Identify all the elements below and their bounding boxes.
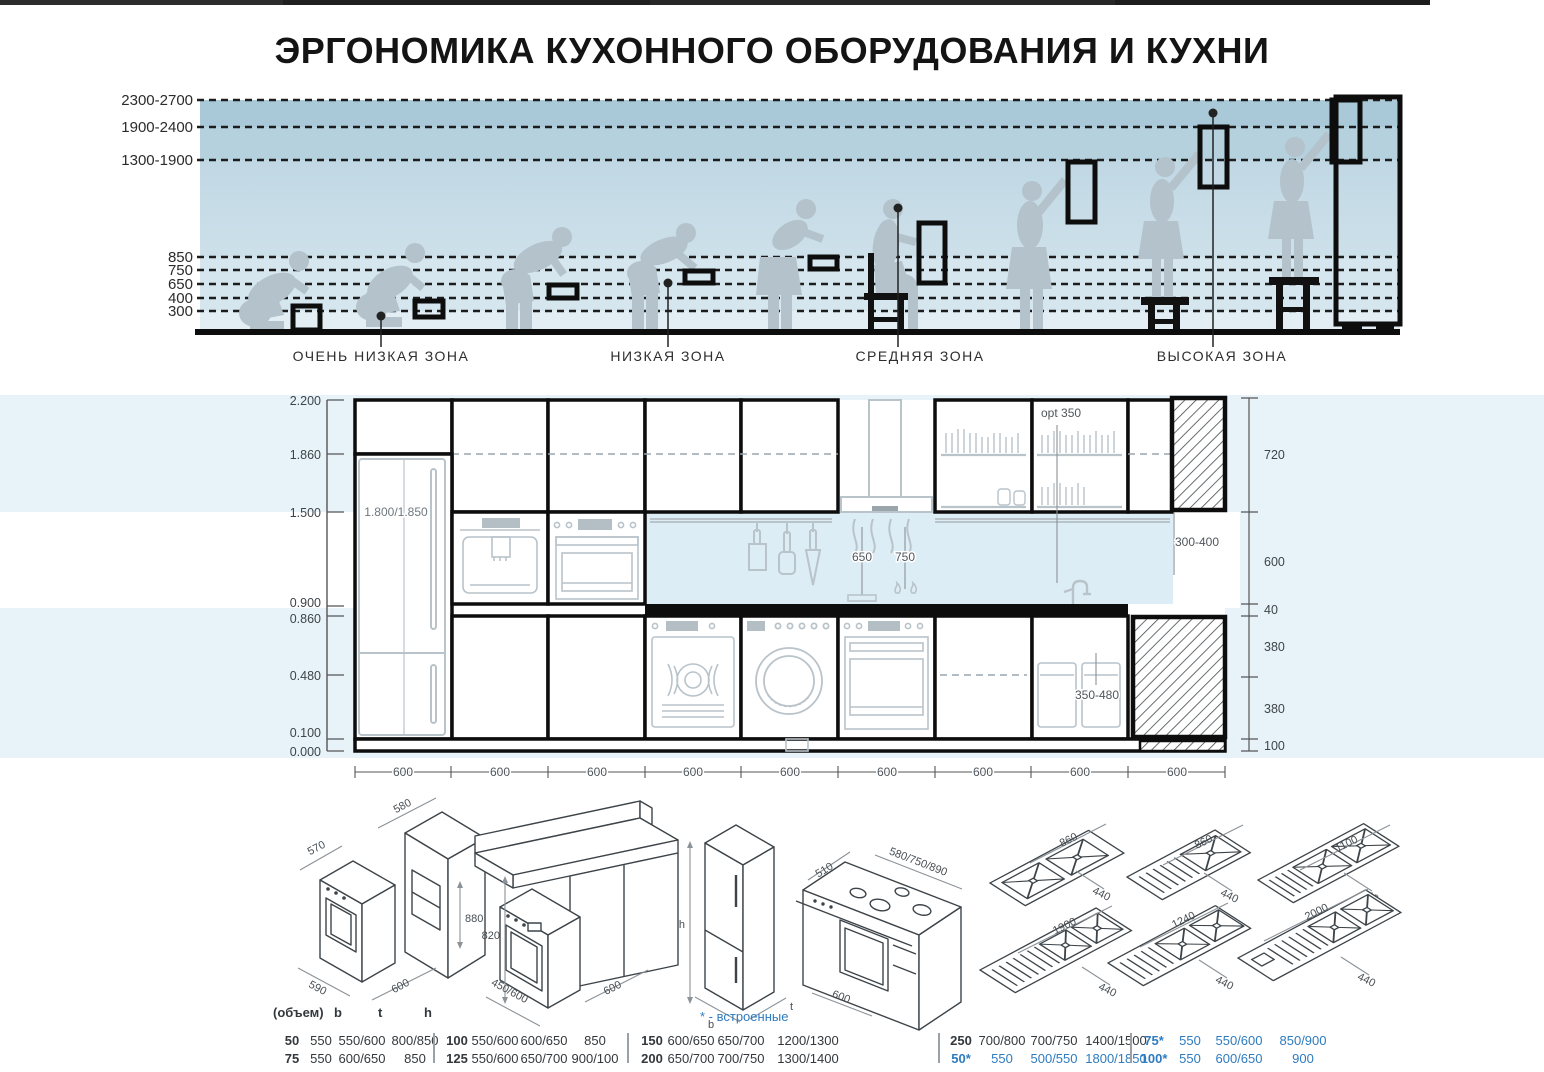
hood-dim-650: 650 <box>852 550 872 564</box>
cabinet <box>452 616 548 739</box>
cell: 600/650 <box>519 1033 569 1048</box>
sink-double-drainboard <box>1258 824 1399 903</box>
page-title: ЭРГОНОМИКА КУХОННОГО ОБОРУДОВАНИЯ И КУХН… <box>0 30 1544 72</box>
dim-590: 590 <box>306 979 328 998</box>
table-separator <box>938 1033 940 1063</box>
cell: 900/100 <box>569 1051 621 1066</box>
zone-label-low: НИЗКАЯ ЗОНА <box>610 348 725 364</box>
right-dim: 380 <box>1264 702 1285 716</box>
module-600: 600 <box>393 765 413 779</box>
dim-niche-880: 880 <box>465 913 483 925</box>
countertop <box>645 604 1128 616</box>
module-600: 600 <box>1167 765 1187 779</box>
height-label: 1300-1900 <box>121 152 193 169</box>
scale-label: 0.100 <box>290 726 321 740</box>
cabinet <box>548 616 645 739</box>
table-separator <box>1130 1033 1132 1063</box>
scale-label: 0.000 <box>290 745 321 759</box>
cell: 1300/1400 <box>766 1051 850 1066</box>
right-dim: 600 <box>1264 555 1285 569</box>
fridge-column: 1.800/1.850 <box>355 454 452 739</box>
cabinet <box>452 400 548 512</box>
bin-depth-label: 350-480 <box>1075 688 1119 702</box>
dim-570: 570 <box>306 839 328 858</box>
cell: 550 <box>306 1051 336 1066</box>
module-600: 600 <box>490 765 510 779</box>
cell: 550 <box>1170 1051 1210 1066</box>
hatched-plinth <box>1140 741 1225 751</box>
iso-sinks: 860 440 860 440 <box>980 824 1401 1000</box>
sink-dim: 440 <box>1218 887 1240 906</box>
table-group-1: 50550550/600800/850 75550600/650850 <box>278 1033 442 1066</box>
dishwasher-cabinet <box>645 616 741 739</box>
dim-h: h <box>679 919 685 931</box>
cell: 550 <box>1170 1033 1210 1048</box>
cell: 550 <box>306 1033 336 1048</box>
cell: 650/700 <box>666 1051 716 1066</box>
scale-label: 1.860 <box>290 448 321 462</box>
cell: 500/550 <box>1028 1051 1080 1066</box>
cell: 650/700 <box>716 1033 766 1048</box>
dim-580-750-890: 580/750/890 <box>887 846 948 879</box>
scale-label: 0.900 <box>290 596 321 610</box>
right-dim: 380 <box>1264 640 1285 654</box>
table-header-t: t <box>378 1005 382 1020</box>
dim-600: 600 <box>602 979 624 998</box>
base-cabinets <box>452 616 1128 739</box>
opt-350-label: opt 350 <box>1041 406 1081 420</box>
iso-oven-tall-cabinet: 880 580 570 590 600 <box>298 797 485 1000</box>
module-600: 600 <box>1070 765 1090 779</box>
top-edge-strip <box>283 0 650 5</box>
cabinet <box>1128 400 1172 512</box>
cell: 850/900 <box>1268 1033 1338 1048</box>
top-edge-strip <box>0 0 283 5</box>
module-600: 600 <box>973 765 993 779</box>
hatched-column-top <box>1172 398 1225 510</box>
module-dims: 600 600 600 600 600 600 600 600 600 <box>355 765 1225 779</box>
plinth <box>355 739 1225 751</box>
table-group-5: 75*550550/600850/900 100*550600/650900 <box>1138 1033 1338 1066</box>
cell: 600/650 <box>336 1051 388 1066</box>
cell: 550/600 <box>471 1033 519 1048</box>
scale-label: 0.480 <box>290 669 321 683</box>
module-600: 600 <box>587 765 607 779</box>
sink-double-drainboard <box>980 908 1131 993</box>
cabinet <box>548 400 645 512</box>
dim-600: 600 <box>390 977 412 996</box>
cell: 700/750 <box>1028 1033 1080 1048</box>
module-600: 600 <box>877 765 897 779</box>
height-label: 2300-2700 <box>121 92 193 109</box>
sink-drainboard <box>1127 830 1250 900</box>
table-group-3: 150600/650650/7001200/1300 200650/700700… <box>638 1033 850 1066</box>
table-group-2: 100550/600600/650850 125550/600650/70090… <box>443 1033 621 1066</box>
table-separator <box>433 1033 435 1063</box>
module-600: 600 <box>683 765 703 779</box>
ground-line <box>195 329 1400 335</box>
module-600: 600 <box>780 765 800 779</box>
right-dim: 720 <box>1264 448 1285 462</box>
coffee-machine <box>452 512 548 604</box>
fridge-height-label: 1.800/1.850 <box>364 505 428 519</box>
height-label: 300 <box>168 303 193 320</box>
cell: 550/600 <box>1210 1033 1268 1048</box>
scale-label: 2.200 <box>290 394 321 408</box>
poster-kitchen-ergonomics: ЭРГОНОМИКА КУХОННОГО ОБОРУДОВАНИЯ И КУХН… <box>0 0 1544 1072</box>
built-in-oven <box>548 512 645 604</box>
sink-dim: 440 <box>1213 974 1235 993</box>
top-edge-strip <box>1115 0 1430 5</box>
table-group-4: 250700/800700/7501400/1500 50*550500/550… <box>946 1033 1152 1066</box>
cell: 200 <box>638 1051 666 1066</box>
cell: 100* <box>1138 1051 1170 1066</box>
table-separator <box>627 1033 629 1063</box>
cell: 125 <box>443 1051 471 1066</box>
top-edge-strip <box>650 0 1115 5</box>
cell: 1200/1300 <box>766 1033 850 1048</box>
cabinet <box>741 400 838 512</box>
sink-dim: 440 <box>1355 971 1377 990</box>
dim-820: 820 <box>482 930 500 942</box>
sink-dim: 440 <box>1090 885 1112 904</box>
right-dim: 40 <box>1264 603 1278 617</box>
iso-oven-under-counter: 820 450/600 600 <box>475 801 678 1026</box>
kitchen-elevation: 650 750 <box>0 385 1544 785</box>
built-in-note: * - встроенные <box>700 1009 788 1024</box>
dim-580: 580 <box>392 797 414 816</box>
rail-dim-label: 300-400 <box>1175 535 1219 549</box>
cell: 900 <box>1268 1051 1338 1066</box>
isometric-drawings: 880 580 570 590 600 <box>0 795 1544 1035</box>
cell: 650/700 <box>519 1051 569 1066</box>
stove-cabinet <box>838 616 935 739</box>
zone-label-middle: СРЕДНЯЯ ЗОНА <box>855 348 984 364</box>
cell: 150 <box>638 1033 666 1048</box>
hatched-column-base <box>1133 617 1225 737</box>
dim-t: t <box>790 1001 793 1013</box>
scale-label: 0.860 <box>290 612 321 626</box>
table-header-h: h <box>424 1005 432 1020</box>
cell: 75 <box>278 1051 306 1066</box>
height-label: 1900-2400 <box>121 119 193 136</box>
scale-label: 1.500 <box>290 506 321 520</box>
zone-label-high: ВЫСОКАЯ ЗОНА <box>1157 348 1288 364</box>
cabinet <box>935 616 1032 739</box>
cell: 550/600 <box>471 1051 519 1066</box>
cell: 250 <box>946 1033 976 1048</box>
cell: 700/750 <box>716 1051 766 1066</box>
zone-label-very-low: ОЧЕНЬ НИЗКАЯ ЗОНА <box>293 348 470 364</box>
sink-cabinet <box>1032 616 1128 739</box>
cell: 50* <box>946 1051 976 1066</box>
cell: 600/650 <box>666 1033 716 1048</box>
table-header-b: b <box>334 1005 342 1020</box>
cell: 100 <box>443 1033 471 1048</box>
cell: 75* <box>1138 1033 1170 1048</box>
ergonomic-zones-diagram: 2300-2700 1900-2400 1300-1900 850 750 65… <box>0 85 1544 385</box>
cabinet <box>355 400 452 454</box>
iso-range-cooker: 510 580/750/890 600 <box>796 846 962 1030</box>
cell: 50 <box>278 1033 306 1048</box>
cell: 700/800 <box>976 1033 1028 1048</box>
cabinet <box>645 400 741 512</box>
iso-fridge: h b t <box>679 825 793 1031</box>
cell: 550 <box>976 1051 1028 1066</box>
cell: 550/600 <box>336 1033 388 1048</box>
cell: 600/650 <box>1210 1051 1268 1066</box>
sink-dim: 440 <box>1096 981 1118 1000</box>
right-dim: 100 <box>1264 739 1285 753</box>
table-header-volume: (объем) <box>273 1005 324 1020</box>
hood-dim-750: 750 <box>895 550 915 564</box>
cell: 850 <box>569 1033 621 1048</box>
